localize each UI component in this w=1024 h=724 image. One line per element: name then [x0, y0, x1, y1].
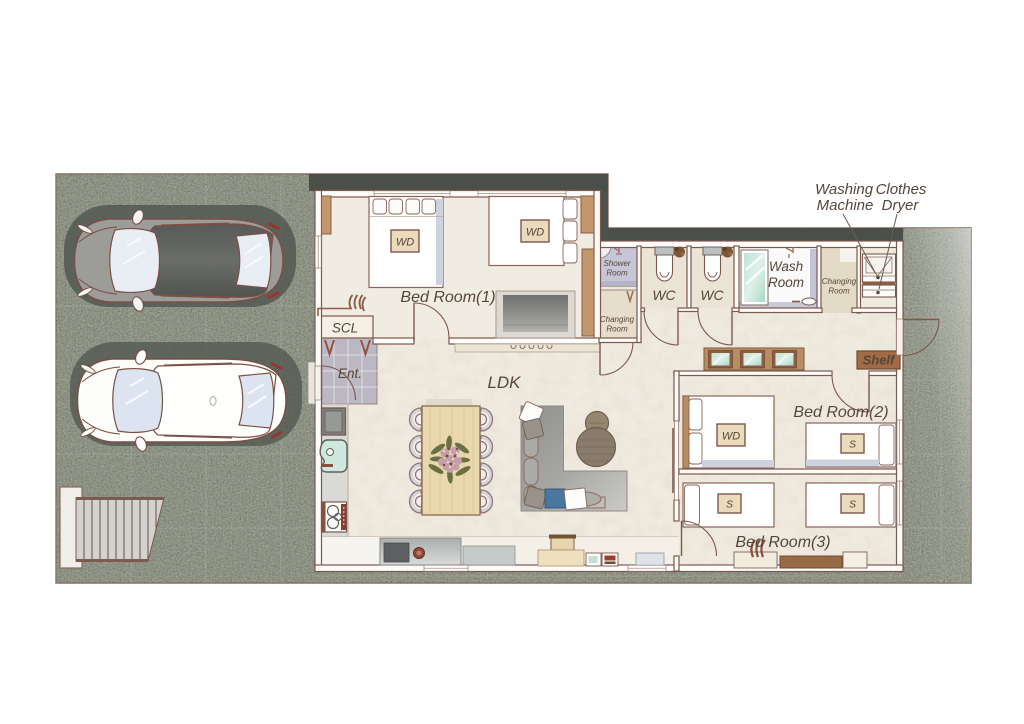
svg-text:S: S — [849, 439, 856, 451]
svg-text:WD: WD — [722, 431, 740, 443]
svg-text:S: S — [726, 499, 733, 511]
svg-text:WC: WC — [652, 287, 676, 303]
svg-text:Washing: Washing — [815, 181, 874, 198]
svg-text:Ent.: Ent. — [338, 366, 362, 381]
svg-text:Room: Room — [606, 325, 628, 334]
svg-text:Bed Room(3): Bed Room(3) — [735, 534, 830, 551]
svg-text:WD: WD — [526, 227, 544, 239]
svg-text:Wash: Wash — [769, 259, 803, 274]
svg-text:Room: Room — [606, 269, 628, 278]
svg-text:Clothes: Clothes — [876, 181, 927, 198]
svg-text:SCL: SCL — [332, 321, 358, 336]
svg-text:Bed Room(2): Bed Room(2) — [793, 404, 888, 421]
svg-text:Changing: Changing — [822, 277, 857, 286]
svg-text:Room: Room — [828, 287, 850, 296]
svg-text:WC: WC — [700, 287, 724, 303]
svg-text:Bed Room(1): Bed Room(1) — [400, 289, 495, 306]
svg-text:Room: Room — [768, 275, 804, 290]
svg-text:Changing: Changing — [600, 315, 635, 324]
svg-text:Shelf: Shelf — [863, 353, 896, 368]
svg-text:Dryer: Dryer — [882, 197, 920, 214]
svg-text:Shower: Shower — [603, 259, 630, 268]
svg-text:S: S — [849, 499, 856, 511]
svg-text:Machine: Machine — [817, 197, 874, 214]
svg-text:WD: WD — [396, 237, 414, 249]
svg-text:LDK: LDK — [487, 373, 521, 392]
